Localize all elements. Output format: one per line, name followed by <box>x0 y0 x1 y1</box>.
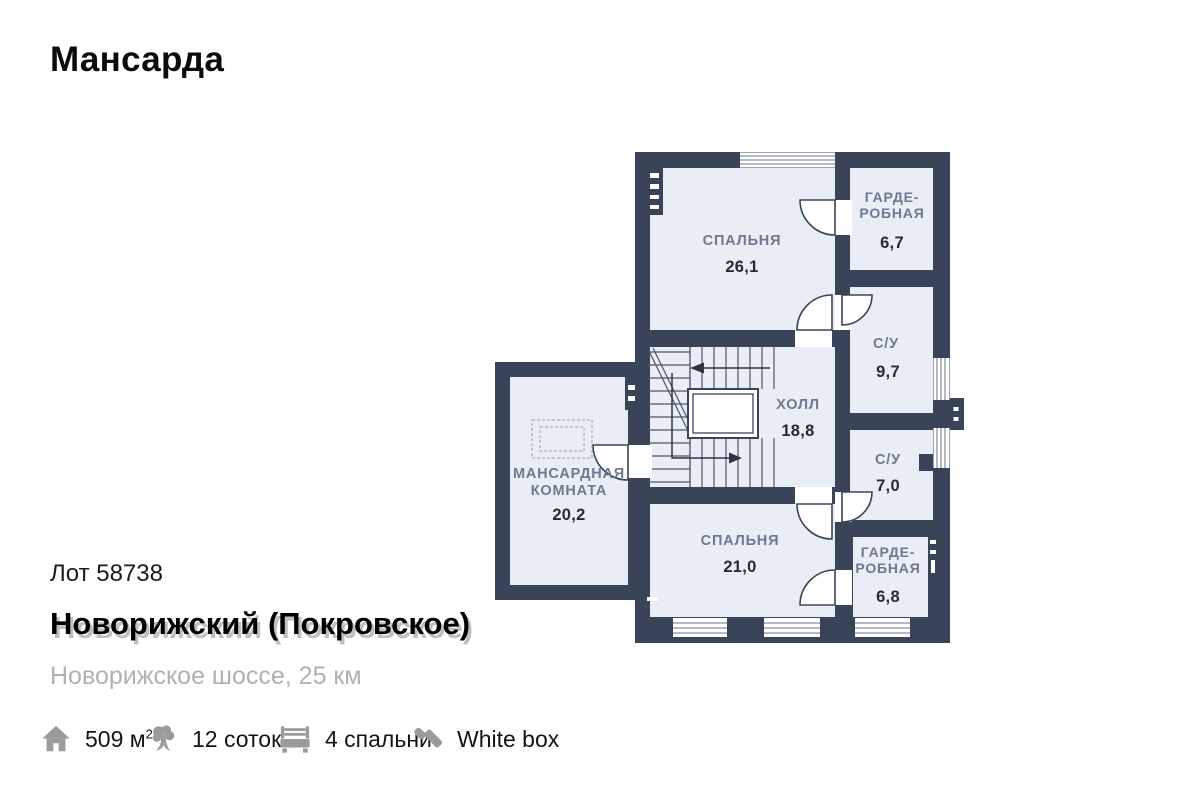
stat-area-value: 509 м2 <box>85 726 153 753</box>
roller-icon <box>412 723 444 755</box>
lot-number: Лот 58738 <box>50 560 163 588</box>
house-icon <box>40 723 72 755</box>
label-bedroom-upper: СПАЛЬНЯ <box>703 233 782 249</box>
label-bathroom-upper: С/У <box>873 336 899 352</box>
area-bedroom-lower: 21,0 <box>723 558 756 576</box>
area-bathroom-upper: 9,7 <box>876 363 900 381</box>
page-title: Мансарда <box>50 40 224 80</box>
label-bedroom-lower: СПАЛЬНЯ <box>701 533 780 549</box>
area-wardrobe-lower: 6,8 <box>876 588 900 606</box>
tree-icon <box>147 723 179 755</box>
window-right-lower <box>934 428 950 468</box>
window-bottom-2 <box>764 618 820 637</box>
area-wardrobe-upper: 6,7 <box>880 234 904 252</box>
label-attic-room-1: МАНСАРДНАЯ <box>513 466 625 482</box>
window-right-upper <box>934 358 950 400</box>
chimney-block <box>950 398 964 430</box>
stat-bedrooms: 4 спальни <box>278 716 432 762</box>
listing-title-text: Новорижский (Покровское) <box>50 606 470 641</box>
stat-finish-value: White box <box>457 726 559 753</box>
label-hall: ХОЛЛ <box>776 397 820 413</box>
window-top <box>740 153 835 168</box>
window-bottom-3 <box>855 618 910 637</box>
stat-finish: White box <box>412 716 559 762</box>
area-bedroom-upper: 26,1 <box>725 258 758 276</box>
area-attic-room: 20,2 <box>552 506 585 524</box>
window-bottom-1 <box>673 618 727 637</box>
area-bathroom-lower: 7,0 <box>876 477 900 495</box>
stair-landing <box>688 389 758 438</box>
stat-land-value: 12 соток <box>192 726 281 753</box>
label-wardrobe-lower-1: ГАРДЕ- <box>861 544 915 560</box>
floor-plan-svg: СПАЛЬНЯ 26,1 ГАРДЕ- РОБНАЯ 6,7 С/У 9,7 Х… <box>490 148 970 648</box>
label-wardrobe-lower-2: РОБНАЯ <box>855 560 920 576</box>
label-attic-room-2: КОМНАТА <box>531 483 607 499</box>
listing-title: Новорижский (Покровское) Новорижский (По… <box>50 606 470 642</box>
floor-plan: СПАЛЬНЯ 26,1 ГАРДЕ- РОБНАЯ 6,7 С/У 9,7 Х… <box>490 148 970 648</box>
stats-row: 509 м2 12 соток 4 спальн <box>40 716 1160 762</box>
label-wardrobe-upper-2: РОБНАЯ <box>859 205 924 221</box>
area-hall: 18,8 <box>781 422 814 440</box>
stat-area: 509 м2 <box>40 716 153 762</box>
listing-subtitle: Новорижское шоссе, 25 км <box>50 662 362 691</box>
bed-icon <box>278 723 312 755</box>
stat-land: 12 соток <box>147 716 281 762</box>
label-bathroom-lower: С/У <box>875 452 901 468</box>
label-wardrobe-upper-1: ГАРДЕ- <box>865 189 919 205</box>
